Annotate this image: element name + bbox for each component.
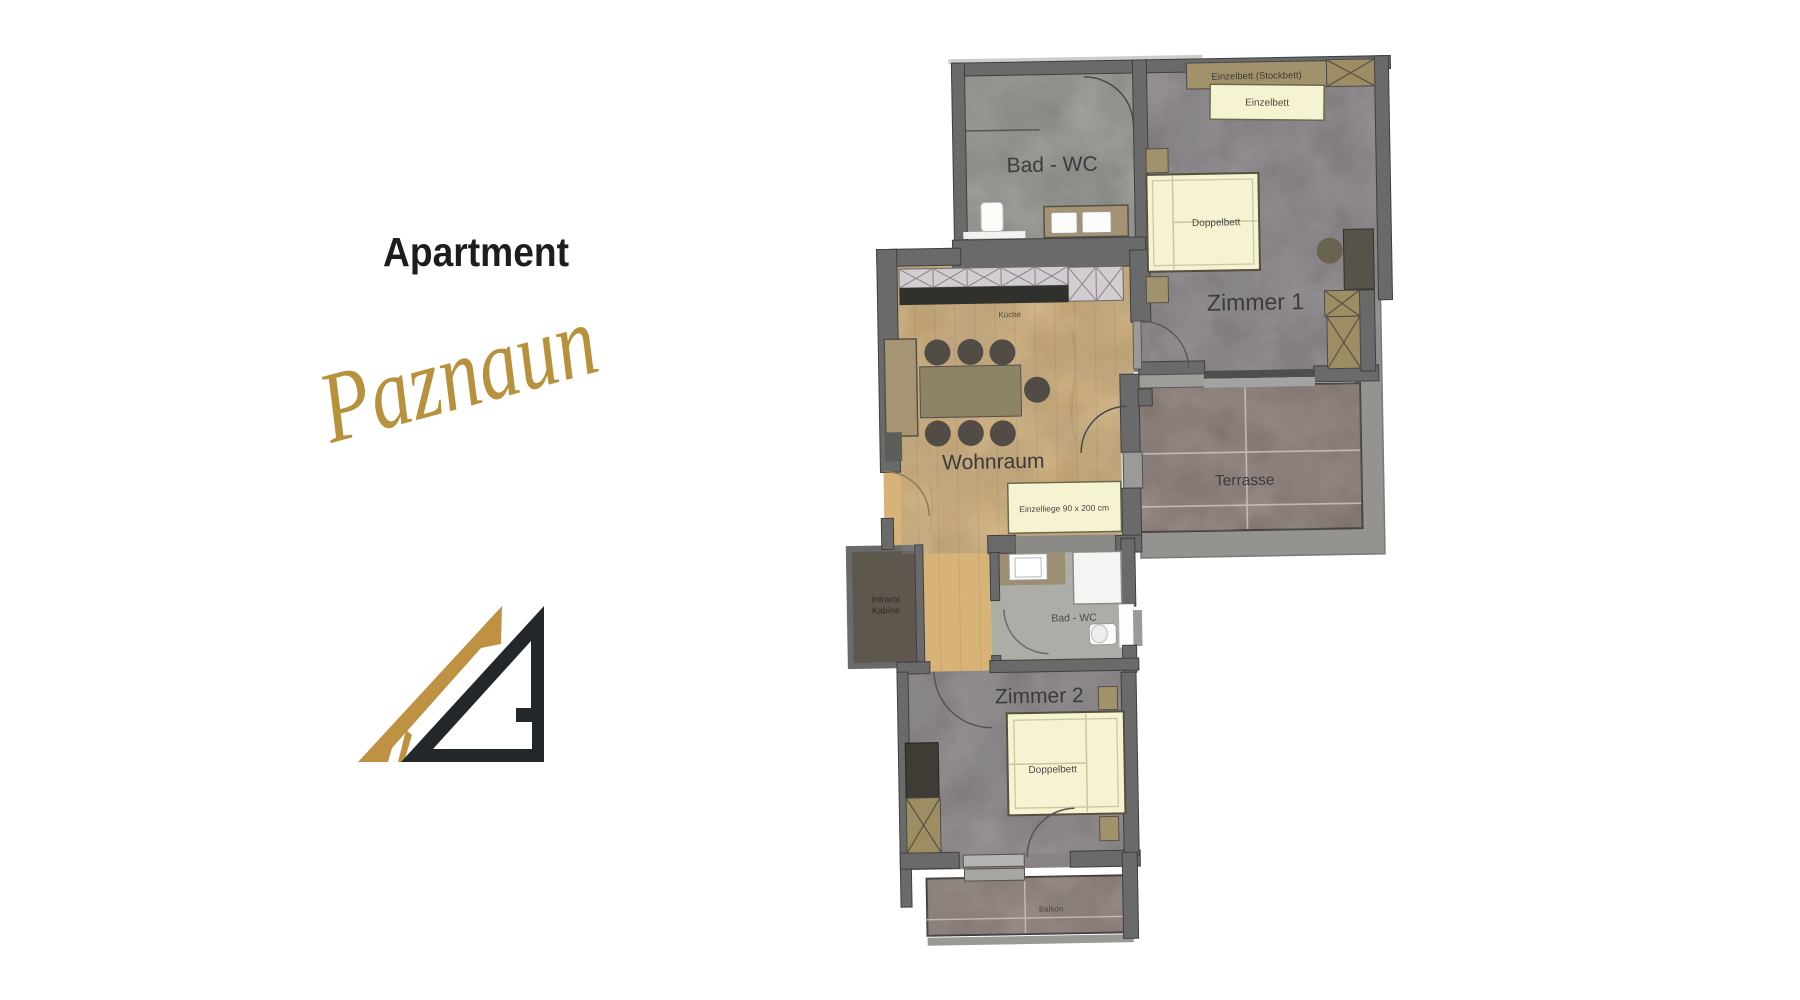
svg-text:Zimmer 2: Zimmer 2 (995, 684, 1084, 709)
svg-text:Paznaun: Paznaun (307, 283, 608, 464)
svg-text:Doppelbett: Doppelbett (1192, 217, 1241, 229)
svg-text:Doppelbett: Doppelbett (1028, 764, 1077, 776)
svg-text:Terrasse: Terrasse (1215, 472, 1275, 490)
svg-text:Bad - WC: Bad - WC (1051, 612, 1097, 625)
svg-text:Einzelbett: Einzelbett (1245, 98, 1289, 109)
svg-text:Wohnraum: Wohnraum (942, 450, 1045, 475)
svg-text:Bad - WC: Bad - WC (1006, 153, 1097, 178)
svg-text:Infrarot: Infrarot (871, 594, 900, 605)
svg-text:Zimmer 1: Zimmer 1 (1207, 288, 1305, 316)
svg-text:Einzelliege 90 x 200 cm: Einzelliege 90 x 200 cm (1019, 503, 1109, 515)
svg-text:Apartment: Apartment (383, 229, 569, 275)
svg-text:Küche: Küche (998, 310, 1021, 319)
svg-text:Kabine: Kabine (872, 605, 900, 615)
svg-text:Einzelbett (Stockbett): Einzelbett (Stockbett) (1211, 70, 1301, 83)
svg-text:Balkon: Balkon (1039, 904, 1064, 913)
